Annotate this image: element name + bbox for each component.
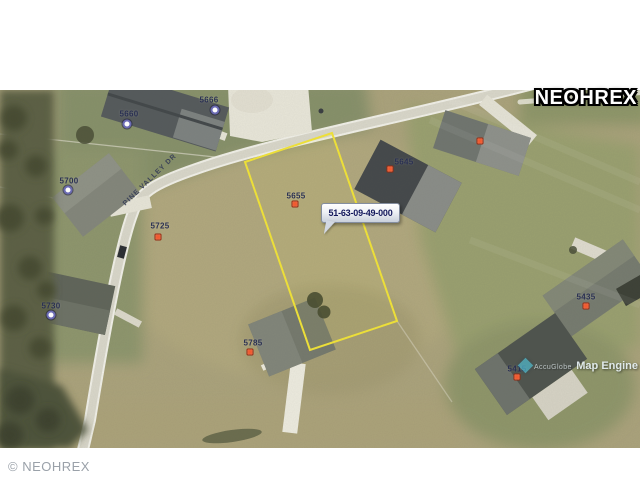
map-engine-logo-icon xyxy=(518,357,534,373)
lot-marker-blue xyxy=(123,120,132,129)
lot-marker-red xyxy=(292,201,299,208)
lot-marker-red xyxy=(247,349,254,356)
lot-label: 5645 xyxy=(395,158,414,167)
neohrex-watermark: NEOHREX xyxy=(535,87,637,110)
lot-marker-blue xyxy=(64,186,73,195)
photo-grain xyxy=(0,90,640,448)
lot-label: 5730 xyxy=(42,302,61,311)
lot-label: 5785 xyxy=(244,339,263,348)
lot-label: 5700 xyxy=(60,177,79,186)
map-engine-line2: Map Engine xyxy=(576,360,638,372)
map-engine-text: AccuGlobe Map Engine xyxy=(534,356,638,374)
lot-marker-blue xyxy=(211,106,220,115)
lot-marker-red xyxy=(387,166,394,173)
lot-marker-red xyxy=(514,374,521,381)
lot-label: 5655 xyxy=(287,192,306,201)
map-engine-watermark: AccuGlobe Map Engine xyxy=(520,356,638,374)
lot-label: 5660 xyxy=(120,110,139,119)
lot-marker-red xyxy=(477,138,484,145)
lot-label: 5666 xyxy=(200,96,219,105)
lot-marker-blue xyxy=(47,311,56,320)
lot-label: 5725 xyxy=(151,222,170,231)
lot-marker-red xyxy=(155,234,162,241)
lot-label: 5435 xyxy=(577,293,596,302)
listing-photo-frame: 5660566657005730572556555645578554355415… xyxy=(0,0,640,480)
map-engine-line1: AccuGlobe xyxy=(534,364,572,371)
parcel-id-text: 51-63-09-49-000 xyxy=(328,208,392,218)
aerial-map: 5660566657005730572556555645578554355415… xyxy=(0,90,640,448)
parcel-id-callout: 51-63-09-49-000 xyxy=(321,203,400,223)
copyright-watermark: © NEOHREX xyxy=(8,459,90,474)
lot-marker-red xyxy=(583,303,590,310)
aerial-map-graphics xyxy=(0,90,640,448)
